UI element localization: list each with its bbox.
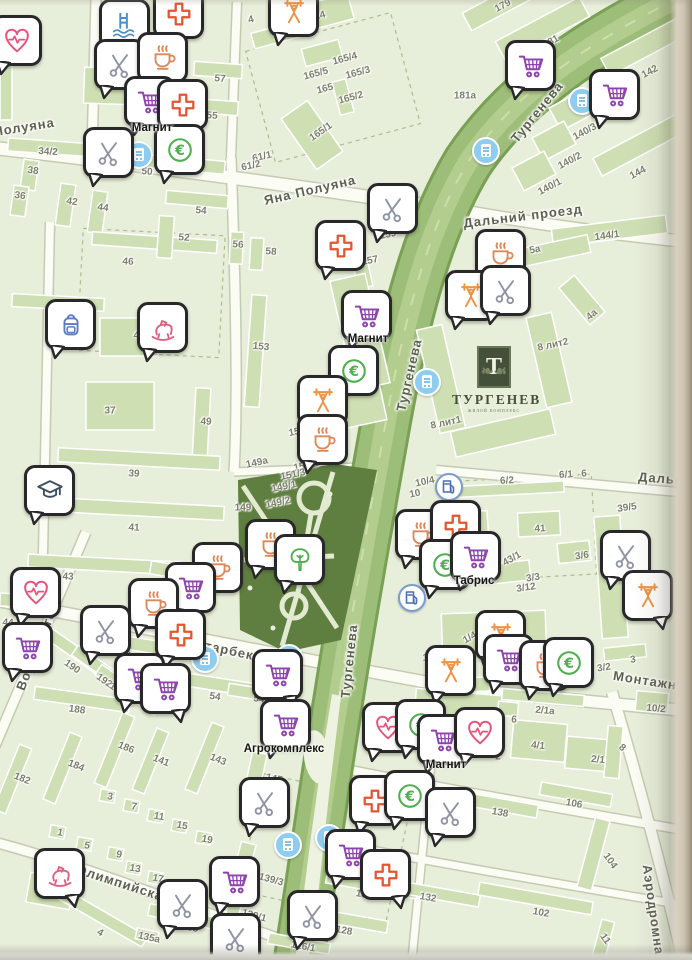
store-name-label: Табрис — [454, 575, 495, 587]
poi-name-layer: МагнитМагнитТабрисАгрокомплексМагнит — [0, 0, 692, 960]
scanned-map-page: € — [0, 0, 692, 960]
store-name-label: Агрокомплекс — [244, 743, 325, 755]
store-name-label: Магнит — [426, 759, 467, 771]
store-name-label: Магнит — [132, 122, 173, 134]
store-name-label: Магнит — [348, 333, 389, 345]
